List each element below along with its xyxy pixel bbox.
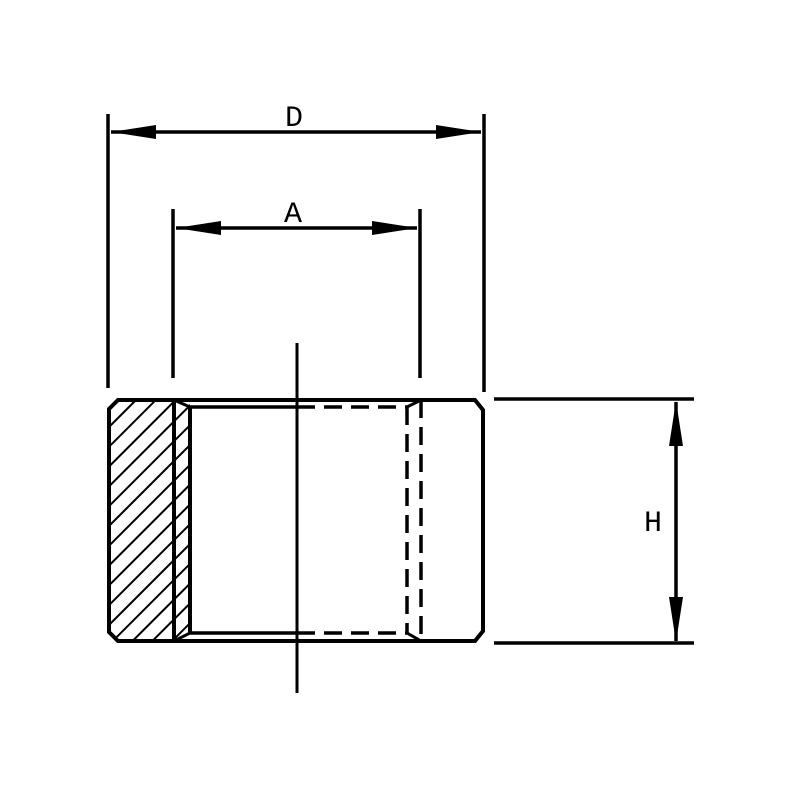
a-arrowhead-left — [176, 221, 221, 235]
technical-drawing: D A H — [0, 0, 800, 800]
hatch-section — [109, 400, 190, 641]
a-arrowhead-right — [372, 221, 417, 235]
d-dimension-label: D — [285, 102, 303, 136]
d-arrowhead-right — [436, 125, 481, 139]
part-body — [109, 343, 483, 693]
h-arrowhead-top — [669, 401, 683, 446]
drawing-canvas: D A H — [0, 0, 800, 800]
h-arrowhead-bottom — [669, 597, 683, 642]
dimension-h: H — [494, 399, 694, 643]
h-dimension-label: H — [644, 507, 662, 541]
d-arrowhead-left — [111, 125, 156, 139]
a-dimension-label: A — [284, 198, 302, 232]
